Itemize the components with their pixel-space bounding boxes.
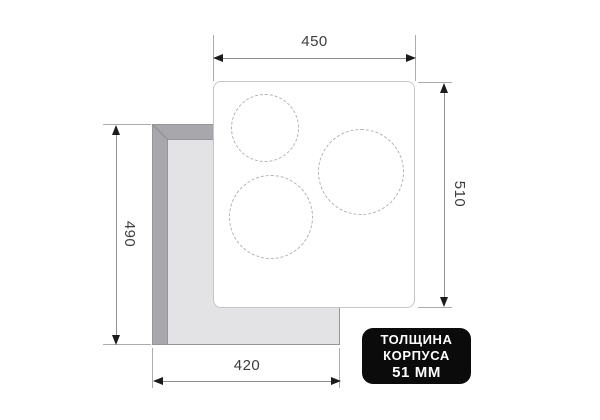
- dimension-line-bottom: [153, 375, 341, 387]
- dimension-label-right: 510: [444, 179, 474, 209]
- dimension-label-top: 450: [213, 33, 416, 50]
- arrowhead-right-icon: [331, 377, 341, 385]
- arrowhead-right-icon: [406, 54, 416, 62]
- badge-text-line2: КОРПУСА: [383, 348, 450, 363]
- badge-text-line3: 51 ММ: [392, 364, 441, 381]
- arrowhead-down-icon: [440, 297, 448, 307]
- badge-text-line1: ТОЛЩИНА: [380, 332, 452, 347]
- dimension-label-left: 490: [114, 219, 144, 249]
- extension-line: [418, 307, 452, 308]
- burner-zone-circle: [318, 129, 404, 215]
- dimension-line-top: [213, 52, 416, 64]
- cooktop-dimension-diagram: 450 510 490 420 ТОЛЩИНА КОРПУСА 51 ММ: [0, 0, 600, 420]
- arrowhead-up-icon: [440, 83, 448, 93]
- arrowhead-left-icon: [153, 377, 163, 385]
- arrowhead-left-icon: [213, 54, 223, 62]
- dimension-label-bottom: 420: [153, 357, 341, 374]
- arrowhead-up-icon: [112, 125, 120, 135]
- burner-zone-circle: [229, 175, 313, 259]
- arrowhead-down-icon: [112, 335, 120, 345]
- body-thickness-badge: ТОЛЩИНА КОРПУСА 51 ММ: [362, 328, 471, 384]
- cooktop-panel: [213, 81, 415, 308]
- bevel-edge-line: [153, 125, 169, 141]
- burner-zone-circle: [231, 94, 299, 162]
